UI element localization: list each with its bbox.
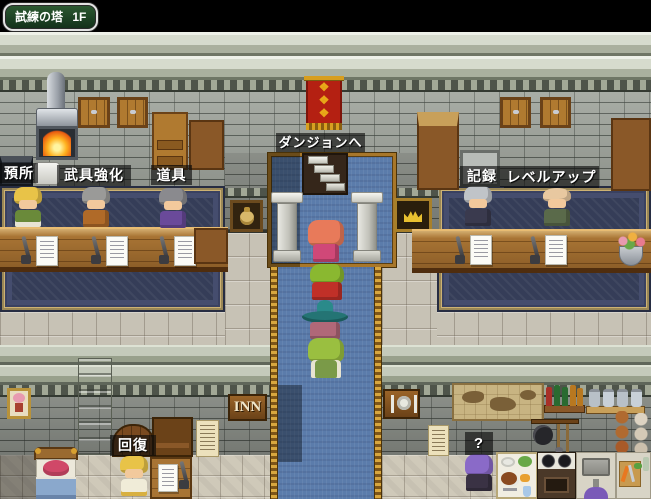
quill-pen — [452, 236, 468, 264]
bookshelf — [417, 112, 459, 190]
fire-icon — [43, 130, 71, 156]
furnace — [36, 108, 78, 160]
queue-adventurer-3[interactable] — [301, 300, 349, 340]
jar-shelf — [586, 385, 645, 414]
bottle-shelf — [544, 381, 585, 413]
map-floor: 1F — [72, 10, 86, 24]
stone-pillar-left — [271, 192, 303, 268]
restaurant-sign — [383, 389, 420, 419]
label-mystery: ? — [465, 432, 493, 455]
counter-paper — [545, 235, 567, 265]
hanging-utensil-rack — [531, 417, 579, 456]
npc-sleeping-guest[interactable] — [43, 460, 69, 476]
npc-record-keeper[interactable] — [462, 186, 494, 230]
npc-blacksmith[interactable] — [80, 187, 112, 231]
counter-paper — [36, 236, 58, 266]
npc-healer[interactable] — [118, 456, 150, 499]
jar-shelf — [189, 120, 224, 170]
stone-pillar-right — [351, 192, 383, 268]
flower-picture — [7, 388, 31, 419]
inn-sign-text: INN — [234, 399, 262, 415]
food-display-table — [496, 452, 538, 499]
stair-step — [308, 156, 328, 164]
wall-cabinet — [117, 97, 148, 128]
notice-paper — [428, 425, 449, 456]
label-to-dungeon: ダンジョンへ — [276, 133, 365, 152]
quill-pen — [88, 236, 104, 264]
stair-step — [314, 165, 334, 173]
counter-paper — [174, 236, 196, 266]
inn-bed[interactable] — [34, 447, 78, 499]
inn-floor-shadow — [0, 455, 36, 499]
book-table — [152, 417, 193, 457]
quill-pen — [18, 236, 34, 264]
drawer-cabinet — [152, 112, 188, 170]
left-room-floor-strip — [225, 233, 270, 345]
wall-cabinet — [540, 97, 571, 128]
label-heal: 回復 — [110, 435, 156, 456]
counter-paper — [470, 235, 492, 265]
notice-paper — [196, 420, 219, 457]
money-bag-sign — [230, 200, 263, 232]
npc-item-clerk[interactable] — [157, 188, 189, 232]
inn-desk — [150, 457, 192, 499]
game-screen: ❖❖❖ — [0, 0, 651, 499]
wall-cabinet — [78, 97, 110, 128]
npc-trainer[interactable] — [541, 188, 573, 232]
flower-vase — [614, 230, 648, 270]
npc-deposit-clerk[interactable] — [12, 187, 44, 231]
crown-icon — [404, 210, 422, 222]
wall-column — [78, 358, 112, 455]
label-level-up: レベルアップ — [504, 166, 599, 188]
left-pillar-trim — [225, 188, 268, 198]
furnace-chimney — [47, 72, 65, 112]
prep-counter — [616, 452, 651, 499]
quill-pen — [527, 236, 543, 264]
wall-banner: ❖❖❖ — [304, 76, 344, 130]
stove — [537, 452, 576, 499]
queue-adventurer-1[interactable] — [306, 220, 346, 266]
potion-shelf — [194, 228, 228, 264]
label-record: 記録 — [460, 166, 504, 187]
wall-cabinet — [500, 97, 531, 128]
queue-adventurer-4[interactable] — [306, 338, 346, 380]
npc-patron-head[interactable] — [584, 487, 608, 499]
stair-step — [320, 174, 340, 182]
crown-sign — [394, 198, 432, 232]
wall-map — [452, 383, 544, 421]
cutlery-icon — [397, 396, 411, 410]
quill-pen — [156, 236, 172, 264]
upper-wall-blocks — [0, 32, 651, 80]
money-bag-icon — [240, 211, 254, 225]
frying-pan-icon — [533, 425, 553, 445]
lower-wall-blocks-left — [0, 345, 270, 385]
wall-shadow-corridor — [278, 385, 302, 462]
counter-paper — [106, 236, 128, 266]
label-deposit: 預所 — [0, 163, 38, 183]
npc-chef[interactable] — [463, 454, 495, 499]
queue-adventurer-2[interactable] — [308, 264, 346, 302]
stair-step — [326, 183, 345, 191]
inn-sign: INN — [228, 394, 267, 421]
lower-wall-blocks-right — [382, 345, 651, 385]
label-equip-upgrade: 武具強化 — [57, 165, 131, 186]
map-name: 試練の塔 — [15, 10, 63, 24]
toy-bookshelf — [611, 118, 651, 191]
label-items: 道具 — [151, 165, 192, 185]
stairwell[interactable] — [302, 153, 348, 195]
corridor-border-left — [270, 267, 278, 499]
map-name-plate: 試練の塔 1F — [3, 3, 98, 31]
corridor-border-right — [374, 267, 382, 499]
